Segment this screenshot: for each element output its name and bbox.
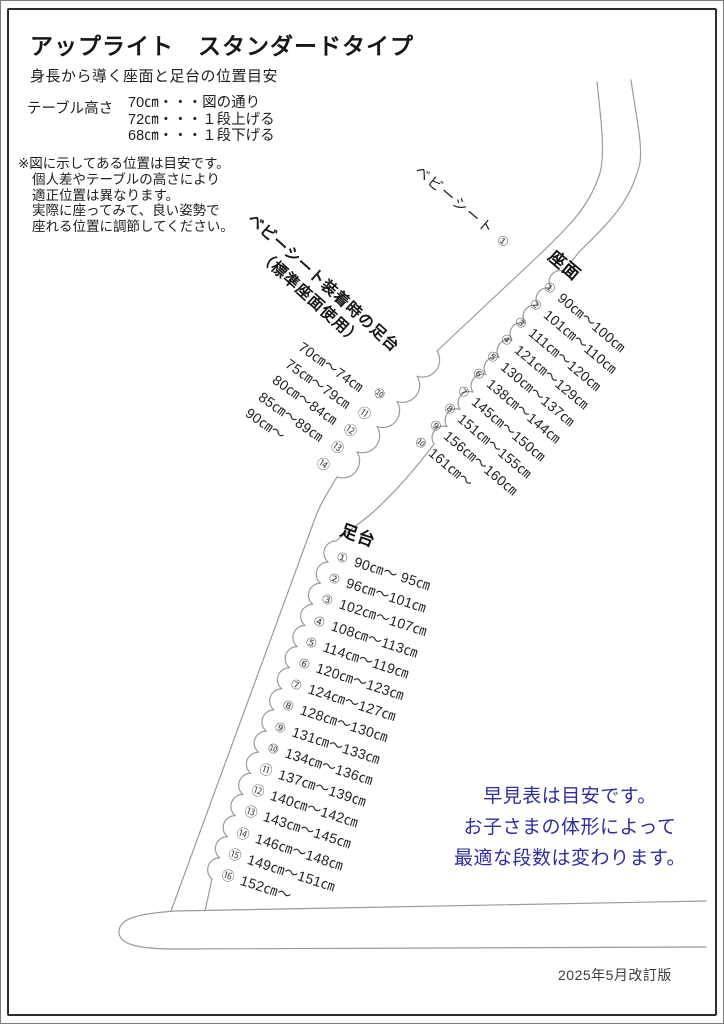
footrest-row-number: ③ — [319, 591, 335, 610]
instruction-sheet: アップライト スタンダードタイプ 身長から導く座面と足台の位置目安 テーブル高さ… — [0, 0, 724, 1024]
footrest-row-number: ⑯ — [219, 864, 237, 886]
footrest-row-number: ⑤ — [303, 634, 319, 653]
footrest-row-number: ⑫ — [249, 779, 267, 801]
footrest-row-number: ⑩ — [265, 740, 281, 759]
footrest-row-number: ⑥ — [296, 655, 312, 674]
footrest-row-number: ⑪ — [257, 758, 275, 780]
notice-line: 最適な段数は変わります。 — [425, 843, 715, 874]
notice-line: お子さまの体形によって — [425, 812, 715, 843]
footrest-row-number: ① — [334, 549, 350, 568]
footrest-row-number: ⑭ — [234, 822, 252, 844]
footrest-row-number: ⑨ — [273, 718, 289, 737]
revision-date: 2025年5月改訂版 — [558, 965, 672, 985]
notice-line: 早見表は目安です。 — [425, 781, 715, 812]
notice-text: 早見表は目安です。お子さまの体形によって最適な段数は変わります。 — [425, 781, 715, 874]
footrest-row-number: ④ — [311, 612, 327, 631]
footrest-row-number: ⑧ — [280, 697, 296, 716]
footrest-row-number: ② — [326, 570, 342, 589]
footrest-row-number: ⑮ — [226, 843, 244, 865]
footrest-row-number: ⑬ — [242, 800, 260, 822]
footrest-row-number: ⑦ — [288, 676, 304, 695]
